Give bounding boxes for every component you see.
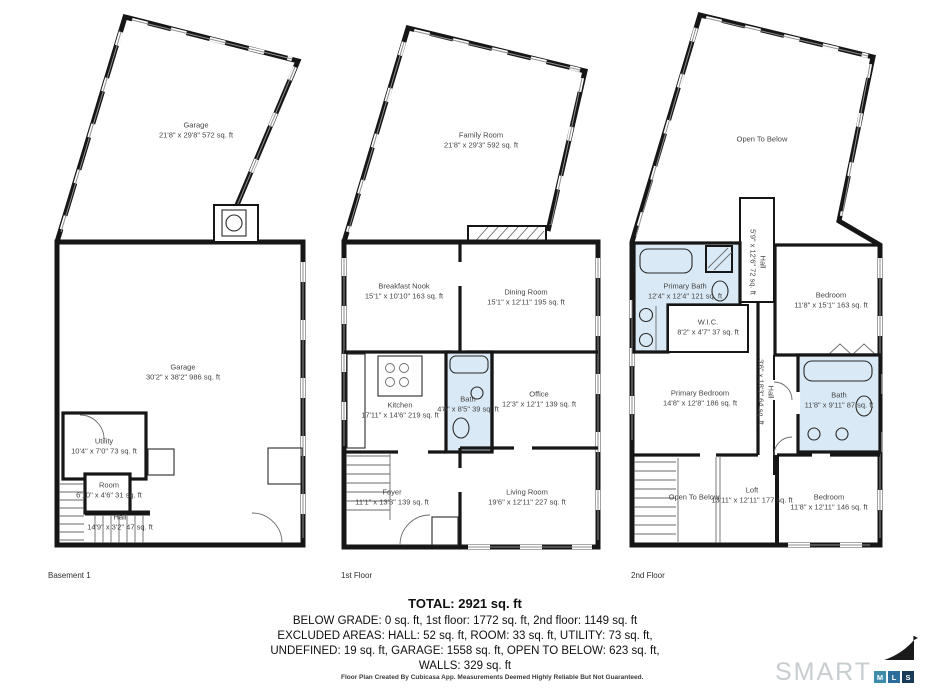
room-label-utility: Utility 10'4" x 7'0" 73 sq. ft <box>71 437 137 456</box>
room-label-primary-bedroom: Primary Bedroom 14'8" x 12'8" 186 sq. ft <box>663 389 737 408</box>
room-label-family-room: Family Room 21'8" x 29'3" 592 sq. ft <box>444 131 518 150</box>
basement-plan <box>57 17 303 545</box>
room-label-bath-first: Bath 4'8" x 8'5" 39 sq. ft <box>437 395 499 414</box>
room-label-hall-upper: Hall 5'9" x 12'6" 72 sq. ft <box>749 229 768 295</box>
room-label-bedroom-lower: Bedroom 11'8" x 12'11" 146 sq. ft <box>790 493 867 512</box>
room-label-hall-basement: Hall 14'9" x 3'2" 47 sq. ft <box>87 513 153 532</box>
sail-icon <box>878 636 918 662</box>
room-label-open-to-below-top: Open To Below <box>737 134 788 144</box>
summary-total: TOTAL: 2921 sq. ft <box>0 596 930 611</box>
room-label-bath-second: Bath 11'8" x 9'11" 87 sq. ft <box>805 391 874 410</box>
room-label-wic: W.I.C. 8'2" x 4'7" 37 sq. ft <box>677 318 739 337</box>
logo-box-m: M <box>874 671 886 683</box>
room-label-office: Office 12'3" x 12'1" 139 sq. ft <box>502 390 576 409</box>
room-label-dining-room: Dining Room 15'1" x 12'11" 195 sq. ft <box>487 288 565 307</box>
room-label-garage-upper: Garage 21'8" x 29'8" 572 sq. ft <box>159 121 233 140</box>
floor-plan-sheet: Garage 21'8" x 29'8" 572 sq. ft Garage 3… <box>0 0 930 697</box>
room-label-loft: Loft 13'11" x 12'11" 177 sq. ft <box>711 486 792 505</box>
caption-second-floor: 2nd Floor <box>631 571 665 580</box>
room-label-garage-lower: Garage 30'2" x 38'2" 986 sq. ft <box>146 363 220 382</box>
room-label-bedroom-upper: Bedroom 11'8" x 15'1" 163 sq. ft <box>794 291 868 310</box>
summary-excluded-1: EXCLUDED AREAS: HALL: 52 sq. ft, ROOM: 3… <box>0 629 930 644</box>
room-label-living-room: Living Room 19'6" x 12'11" 227 sq. ft <box>488 488 566 507</box>
caption-basement: Basement 1 <box>48 571 91 580</box>
room-label-foyer: Foyer 11'1" x 13'3" 139 sq. ft <box>355 488 429 507</box>
room-label-primary-bath: Primary Bath 12'4" x 12'4" 121 sq. ft <box>648 282 722 301</box>
room-label-room: Room 6'10" x 4'6" 31 sq. ft <box>76 481 142 500</box>
room-label-kitchen: Kitchen 17'11" x 14'6" 219 sq. ft <box>361 401 439 420</box>
room-label-hall-mid: Hall 3'6" x 18'3" 64 sq. ft <box>757 359 776 425</box>
summary-excluded-2: UNDEFINED: 19 sq. ft, GARAGE: 1558 sq. f… <box>0 644 930 659</box>
logo-wordmark: SMART <box>775 660 872 685</box>
logo-box-l: L <box>888 671 900 683</box>
room-label-breakfast-nook: Breakfast Nook 15'1" x 10'10" 163 sq. ft <box>365 282 443 301</box>
floor-plan-drawing <box>0 0 930 697</box>
logo-box-s: S <box>902 671 914 683</box>
caption-first-floor: 1st Floor <box>341 571 372 580</box>
smart-mls-logo: SMART M L S <box>775 660 914 685</box>
summary-floors: BELOW GRADE: 0 sq. ft, 1st floor: 1772 s… <box>0 614 930 629</box>
disclaimer-text: Floor Plan Created By Cubicasa App. Meas… <box>341 674 643 681</box>
